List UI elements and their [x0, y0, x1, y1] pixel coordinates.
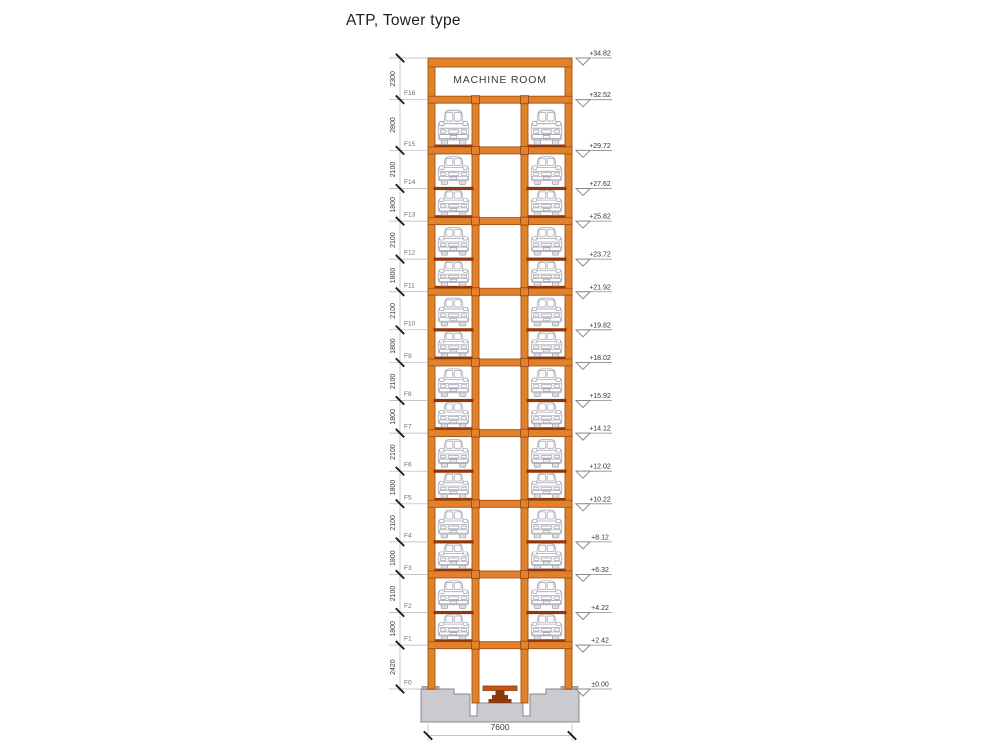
beam-column-node — [472, 146, 480, 154]
beam-column-node — [472, 429, 480, 437]
bottom-width-label: 7600 — [491, 722, 510, 732]
turntable-pedestal — [492, 695, 508, 700]
elevation-marker-triangle — [576, 330, 590, 337]
car-icon — [438, 440, 468, 468]
car-icon — [531, 440, 561, 468]
car-icon — [438, 369, 468, 397]
floor-height-dimension: 1800 — [390, 621, 397, 637]
car-icon — [531, 473, 561, 498]
beam-column-node — [472, 570, 480, 578]
car-icon — [531, 510, 561, 538]
elevation-marker-triangle — [576, 613, 590, 620]
floor-label: F7 — [404, 424, 412, 431]
beam-column-node — [472, 288, 480, 296]
car-pallet — [435, 286, 473, 288]
floor-beam — [428, 288, 572, 295]
car-icon — [438, 332, 468, 357]
floor-height-dimension: 1800 — [390, 480, 397, 496]
car-icon — [438, 190, 468, 215]
beam-column-node — [521, 500, 529, 508]
floor-height-dimension: 2800 — [390, 117, 397, 133]
floor-platform — [527, 470, 567, 473]
elevation-label: +27.62 — [589, 181, 611, 188]
beam-column-node — [472, 641, 480, 649]
beam-column-node — [521, 146, 529, 154]
elevation-label: +6.32 — [591, 567, 609, 574]
roof-beam — [428, 58, 572, 67]
elevation-label: +14.12 — [589, 426, 611, 433]
beam-column-node — [521, 96, 529, 104]
car-icon — [438, 544, 468, 569]
floor-height-dimension: 2100 — [390, 374, 397, 390]
generated-drawing: 2300F162800F152100F141800F132100F121800F… — [389, 51, 612, 742]
car-icon — [531, 261, 561, 286]
atp-tower-diagram: 2300F162800F152100F141800F132100F121800F… — [0, 0, 990, 750]
car-pallet — [528, 639, 566, 641]
floor-height-dimension: 2100 — [390, 515, 397, 531]
floor-height-dimension: 2100 — [390, 232, 397, 248]
floor-label: F9 — [404, 353, 412, 360]
floor-platform — [434, 540, 474, 543]
car-icon — [438, 261, 468, 286]
floor-label: F15 — [404, 141, 416, 148]
floor-platform — [434, 328, 474, 331]
elevation-label: +25.82 — [589, 214, 611, 221]
elevation-label: +8.12 — [591, 534, 609, 541]
drawing-canvas: ATP, Tower type 2300F162800F152100F14180… — [0, 0, 990, 750]
beam-column-node — [521, 570, 529, 578]
elevation-marker-triangle — [576, 188, 590, 195]
elevation-marker-triangle — [576, 100, 590, 107]
floor-label: F10 — [404, 320, 416, 327]
floor-height-dimension: 2100 — [390, 444, 397, 460]
elevation-label: +10.22 — [589, 496, 611, 503]
floor-platform — [527, 328, 567, 331]
car-pallet — [528, 498, 566, 500]
floor-height-dimension: 1800 — [390, 197, 397, 213]
elevation-marker-triangle — [576, 362, 590, 369]
floor-label: F4 — [404, 532, 412, 539]
car-pallet — [435, 569, 473, 571]
floor-height-dimension: 2100 — [390, 303, 397, 319]
car-pallet — [528, 215, 566, 217]
elevation-marker-triangle — [576, 645, 590, 652]
beam-column-node — [521, 641, 529, 649]
floor-beam — [428, 571, 572, 578]
elevation-label: ±0.00 — [591, 682, 609, 689]
floor-height-dimension: 2300 — [390, 71, 397, 87]
car-icon — [438, 228, 468, 256]
elevation-label: +21.92 — [589, 284, 611, 291]
floor-label: F1 — [404, 636, 412, 643]
floor-platform — [434, 258, 474, 261]
car-pallet — [528, 286, 566, 288]
elevation-marker-triangle — [576, 574, 590, 581]
car-icon — [531, 110, 561, 144]
car-icon — [531, 332, 561, 357]
floor-label: F13 — [404, 212, 416, 219]
elevation-marker-triangle — [576, 259, 590, 266]
car-icon — [531, 157, 561, 185]
car-pallet — [528, 145, 566, 147]
floor-platform — [527, 258, 567, 261]
car-pallet — [435, 498, 473, 500]
car-icon — [531, 369, 561, 397]
car-icon — [531, 228, 561, 256]
car-pallet — [435, 427, 473, 429]
elevation-label: +19.82 — [589, 322, 611, 329]
car-icon — [438, 402, 468, 427]
car-icon — [438, 110, 468, 144]
floor-height-dimension: 1800 — [390, 409, 397, 425]
beam-column-node — [472, 217, 480, 225]
floor-height-dimension: 1800 — [390, 268, 397, 284]
car-icon — [438, 614, 468, 639]
floor-beam — [428, 642, 572, 649]
floor-label: F5 — [404, 494, 412, 501]
elevation-marker-triangle — [576, 150, 590, 157]
beam-column-node — [521, 288, 529, 296]
elevation-label: +34.82 — [589, 51, 611, 58]
elevation-marker-triangle — [576, 471, 590, 478]
elevation-marker-triangle — [576, 401, 590, 408]
car-icon — [438, 157, 468, 185]
floor-height-dimension: 1800 — [390, 550, 397, 566]
car-icon — [438, 510, 468, 538]
floor-label: F11 — [404, 282, 415, 289]
elevation-marker-triangle — [576, 58, 590, 65]
elevation-markers: +34.82+32.52+29.72+27.62+25.82+23.72+21.… — [576, 51, 612, 697]
elevation-label: +2.42 — [591, 638, 609, 645]
car-icon — [438, 473, 468, 498]
floor-platform — [434, 470, 474, 473]
car-pallet — [435, 145, 473, 147]
beam-column-node — [521, 429, 529, 437]
machine-room-label: MACHINE ROOM — [453, 74, 547, 86]
car-pallet — [528, 427, 566, 429]
beam-column-node — [521, 217, 529, 225]
floor-platform — [527, 540, 567, 543]
car-icon — [438, 298, 468, 326]
floor-label: F12 — [404, 250, 416, 257]
beam-column-node — [521, 358, 529, 366]
floor-beam — [428, 500, 572, 507]
floor-beam — [428, 218, 572, 225]
car-icon — [531, 581, 561, 609]
floor-platform — [434, 399, 474, 402]
floor-height-dimension: 2100 — [390, 586, 397, 602]
car-icon — [531, 614, 561, 639]
floor-label: F16 — [404, 90, 416, 97]
turntable — [483, 686, 517, 703]
left-dimensions: 2300F162800F152100F141800F132100F121800F… — [389, 54, 427, 693]
beam-column-node — [472, 96, 480, 104]
turntable-stem — [496, 691, 505, 696]
car-pallet — [528, 569, 566, 571]
floor-platform — [527, 611, 567, 614]
car-pallet — [435, 215, 473, 217]
floor-platform — [527, 399, 567, 402]
floor-platform — [434, 187, 474, 190]
turntable-base — [489, 699, 512, 703]
elevation-marker-triangle — [576, 221, 590, 228]
car-icon — [531, 544, 561, 569]
floor-label: F2 — [404, 603, 412, 610]
elevation-marker-triangle — [576, 433, 590, 440]
floor-beam — [428, 359, 572, 366]
car-icon — [531, 298, 561, 326]
elevation-marker-triangle — [576, 542, 590, 549]
floor-label: F8 — [404, 391, 412, 398]
floor-label: F0 — [404, 680, 412, 687]
elevation-label: +18.02 — [589, 355, 611, 362]
floor-beam — [428, 147, 572, 154]
elevation-label: +15.92 — [589, 393, 611, 400]
floor-platform — [434, 611, 474, 614]
floor-label: F14 — [404, 179, 416, 186]
elevation-label: +12.02 — [589, 464, 611, 471]
floor-label: F3 — [404, 565, 412, 572]
elevation-label: +32.52 — [589, 92, 611, 99]
car-icon — [438, 581, 468, 609]
floor-height-dimension: 2100 — [390, 162, 397, 178]
turntable-platter — [483, 686, 517, 691]
floor-platform — [527, 187, 567, 190]
elevation-label: +4.22 — [591, 605, 609, 612]
car-pallet — [528, 357, 566, 359]
floor-height-dimension: 2420 — [390, 659, 397, 675]
floor-height-dimension: 1800 — [390, 338, 397, 354]
car-icon — [531, 190, 561, 215]
beam-column-node — [472, 358, 480, 366]
car-icon — [531, 402, 561, 427]
floor-label: F6 — [404, 462, 412, 469]
elevation-label: +23.72 — [589, 252, 611, 259]
floor-beam — [428, 96, 572, 103]
car-pallet — [435, 357, 473, 359]
beam-column-node — [472, 500, 480, 508]
floor-beam — [428, 430, 572, 437]
elevation-label: +29.72 — [589, 143, 611, 150]
elevation-marker-triangle — [576, 292, 590, 299]
elevation-marker-triangle — [576, 504, 590, 511]
car-pallet — [435, 639, 473, 641]
